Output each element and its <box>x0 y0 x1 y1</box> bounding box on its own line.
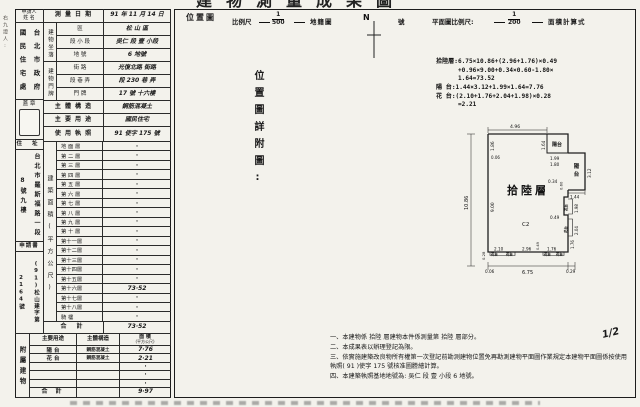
flower-bed-mark: 花台 <box>544 252 551 257</box>
balcony-label: 台 <box>574 170 580 178</box>
dim-label: 2.96 <box>522 247 532 252</box>
situs-section-value: 吳仁 段 壹 小段 <box>104 36 171 49</box>
address-label: 住 址 <box>15 140 44 150</box>
flower-bed-mark: 花台 <box>556 252 563 257</box>
annex-total-value: 9·97 <box>120 388 171 398</box>
floor-value: · <box>103 161 171 169</box>
lane-label: 段 巷 弄 <box>57 75 104 88</box>
document-title: 建物測量成果圖 <box>196 0 526 8</box>
annex-area: · <box>120 371 171 378</box>
plan-scale-label: 平面圖比例尺: <box>432 16 474 26</box>
annex-rows: 陽 台鋼筋混凝土7·76 花 台鋼筋混凝土2·21 · · · <box>30 346 171 388</box>
plan-scale-denominator: 200 <box>508 20 521 27</box>
floor-label: 第十二層 <box>57 246 103 254</box>
dim-label: 9.00 <box>490 202 496 212</box>
scale-dash <box>259 22 270 23</box>
table-row: 第十二層· <box>57 246 171 255</box>
note-line: 一、本建物係 拾陸 層建物本件係測量第 拾陸 層部分。 <box>330 334 630 343</box>
table-row: 第十四層· <box>57 265 171 274</box>
situs-lot-label: 地 號 <box>57 49 104 62</box>
annex-use <box>30 380 77 387</box>
dim-label: 0.06 <box>491 155 500 160</box>
dim-label: 1.86 <box>490 141 496 151</box>
floor-value: · <box>103 180 171 188</box>
formula-line: 陽 台:1.44×3.12+1.99×1.64=7.76 <box>436 84 557 93</box>
dim-label: 1.44 <box>570 195 580 200</box>
dim-label: 0.29 <box>566 269 576 274</box>
table-row: 花 台鋼筋混凝土2·21 <box>30 354 171 362</box>
applicant-header: 申請人 姓 名 <box>15 9 44 23</box>
flower-bed-mark: 花台 <box>564 204 569 211</box>
formula-line: +0.96×9.00+0.34×0.60-1.80× <box>436 67 557 76</box>
annex-area: · <box>120 363 171 370</box>
room-label: 拾陸層 <box>507 183 549 197</box>
dim-label: 1.99 <box>550 156 560 161</box>
table-row: 第十一層· <box>57 237 171 246</box>
lane-value: 段 230 巷 弄 <box>104 75 171 88</box>
annex-structure-header: 主體構造 <box>77 334 120 346</box>
note-line: 三、依實施建築改良物所有權第一次登記前勘測建物位置免再勘測建物平面圖作業規定本建… <box>330 354 630 372</box>
floor-label: 第 八 層 <box>57 208 103 216</box>
dim-label: 0.60 <box>559 181 564 190</box>
floor-area-group-label: 建築面積(平方公尺) <box>44 142 57 322</box>
annex-total-label: 合 計 <box>30 388 77 398</box>
application-label: 申請書 <box>15 242 44 252</box>
survey-date-value: 91 年 11 月 14 日 <box>104 9 171 23</box>
table-row: 地 面 層· <box>57 142 171 151</box>
scale-fraction: 1 500 <box>272 12 285 27</box>
plan-scale-fraction: 1 200 <box>508 12 521 27</box>
note-line: 四、本建築執照基地地號為: 吳仁 段 壹 小段 6 地號。 <box>330 373 630 382</box>
dim-label: 1.80 <box>550 162 560 167</box>
floor-value: · <box>103 294 171 302</box>
floor-area-table: 地 面 層· 第 二 層· 第 三 層· 第 四 層· 第 五 層· 第 六 層… <box>57 142 171 322</box>
dim-label: 0.06 <box>485 269 495 274</box>
table-row: 第十三層· <box>57 256 171 265</box>
flower-bed-mark: 花台 <box>491 252 498 257</box>
floors-total-value: 73·52 <box>104 322 171 334</box>
formula-line: 1.64=73.52 <box>436 75 557 84</box>
floor-label: 第十五層 <box>57 275 103 283</box>
annex-structure <box>77 371 120 378</box>
table-row: · <box>30 371 171 379</box>
number-label: 門 牌 <box>57 88 104 101</box>
floor-label: 第 七 層 <box>57 199 103 207</box>
dim-label: 1.98 <box>574 204 579 213</box>
license-value: 91 使字 175 號 <box>104 127 171 142</box>
balcony-label: 陽 <box>574 162 580 170</box>
flower-bed-mark: 花台 <box>563 226 568 233</box>
annex-structure <box>77 380 120 387</box>
floor-label: 第 九 層 <box>57 218 103 226</box>
street-label: 街 路 <box>57 62 104 75</box>
situs-section-label: 段 小 段 <box>57 36 104 49</box>
number-value: 17 號 十六樓 <box>104 88 171 101</box>
table-row: 第十七層· <box>57 294 171 303</box>
floor-value: · <box>103 189 171 197</box>
stamp-box <box>19 109 40 136</box>
formula-line: 拾陸層:6.75×10.86+(2.96+1.76)×0.49 <box>436 58 557 67</box>
floor-label: 第 六 層 <box>57 189 103 197</box>
cadastre-label: 地籍圖 <box>310 16 333 26</box>
table-row: 第 九 層· <box>57 218 171 227</box>
floor-value: · <box>103 227 171 235</box>
applicant-name-label: 姓 名 <box>23 16 35 22</box>
annex-group-label: 附屬建物 <box>15 334 30 398</box>
formula-line: =2.21 <box>436 101 557 110</box>
table-row: 第 六 層· <box>57 189 171 198</box>
formula-line: 花 台:(2.10+1.76+2.04+1.98)×0.28 <box>436 93 557 102</box>
table-row: 第 十 層· <box>57 227 171 236</box>
structure-label: 主 體 構 造 <box>44 101 104 114</box>
annex-use <box>30 371 77 378</box>
application-no: (91)松山建字第2164號 <box>15 252 44 334</box>
location-detail-caption: 位置圖詳附圖: <box>250 70 265 230</box>
annex-area: 2·21 <box>120 354 171 361</box>
floors-total-label: 合 計 <box>44 322 104 334</box>
north-arrow: N <box>362 11 384 61</box>
area-calc-block: 拾陸層:6.75×10.86+(2.96+1.76)×0.49 +0.96×9.… <box>436 58 557 110</box>
scale-denominator: 500 <box>272 20 285 27</box>
table-row: 第 二 層· <box>57 151 171 160</box>
annex-use-header: 主要用途 <box>30 334 77 346</box>
annex-use: 陽 台 <box>30 346 77 353</box>
dim-label: 0.49 <box>536 241 540 250</box>
dim-label: 6.75 <box>522 270 533 276</box>
floor-value: · <box>103 199 171 207</box>
street-value: 光復北路 街路 <box>104 62 171 75</box>
table-row: 第 四 層· <box>57 170 171 179</box>
margin-annotation: 右九證人: <box>2 15 9 85</box>
note-line: 二、本成果表以辦理登記為限。 <box>330 344 630 353</box>
scale-dash <box>294 22 305 23</box>
floor-value: · <box>103 218 171 226</box>
dim-label: 1.64 <box>541 140 546 150</box>
area-header-line2: (平方公尺) <box>135 340 154 344</box>
floor-value: · <box>103 275 171 283</box>
situs-lot-value: 6 地號 <box>104 49 171 62</box>
annex-use: 花 台 <box>30 354 77 361</box>
floor-label: 第 二 層 <box>57 151 103 159</box>
floor-label: 第 五 層 <box>57 180 103 188</box>
seal-cell: 蓋 章 <box>15 100 44 140</box>
scale-label: 比例尺 <box>232 16 252 26</box>
floor-value: · <box>103 303 171 311</box>
scale-dash <box>494 22 505 23</box>
floor-plan: 4.96 10.86 1.86 9.00 0.06 陽台 1.64 1.99 1… <box>444 120 632 298</box>
annex-structure: 鋼筋混凝土 <box>77 354 120 361</box>
dim-label: 0.28 <box>481 251 486 260</box>
dim-label: 2.04 <box>574 226 579 235</box>
scale-dash <box>532 22 543 23</box>
situs-district-label: 區 <box>57 23 104 36</box>
floor-value: 73·52 <box>103 284 171 292</box>
floor-label: 第 三 層 <box>57 161 103 169</box>
table-row: 第十五層· <box>57 275 171 284</box>
area-calc-label: 面積計算式 <box>548 16 586 26</box>
situs-group-label: 建物坐落 <box>44 23 57 62</box>
structure-value: 鋼筋混凝土 <box>104 101 171 114</box>
usage-value: 國民住宅 <box>104 114 171 127</box>
location-map-label: 位置圖 <box>186 12 216 23</box>
dim-label: 4.96 <box>510 124 520 130</box>
floor-value: · <box>103 256 171 264</box>
dim-label: 1.76 <box>570 240 575 249</box>
annex-area: 7·76 <box>120 346 171 353</box>
cadastre-no-label: 號 <box>398 16 405 26</box>
floor-label: 第十六層 <box>57 284 103 292</box>
table-row: 騎 樓· <box>57 312 171 321</box>
table-row: 第 五 層· <box>57 180 171 189</box>
dim-label: 0.49 <box>550 215 560 220</box>
license-label: 使 用 執 照 <box>44 127 104 142</box>
floor-value: · <box>103 151 171 159</box>
floor-value: · <box>103 170 171 178</box>
table-row: 第十八層· <box>57 303 171 312</box>
floor-label: 第十八層 <box>57 303 103 311</box>
floor-label: 第 四 層 <box>57 170 103 178</box>
table-row: · <box>30 380 171 388</box>
floor-label: 騎 樓 <box>57 312 103 320</box>
dim-label: 2.10 <box>494 247 504 252</box>
floor-value: · <box>103 312 171 320</box>
floor-label: 地 面 層 <box>57 142 103 150</box>
annex-structure: 鋼筋混凝土 <box>77 346 120 353</box>
dim-label: 1.76 <box>547 247 557 252</box>
doorplate-group-label: 建物門牌 <box>44 62 57 101</box>
floor-value: · <box>103 208 171 216</box>
floor-value: · <box>103 142 171 150</box>
notes-block: 一、本建物係 拾陸 層建物本件係測量第 拾陸 層部分。 二、本成果表以辦理登記為… <box>330 334 630 383</box>
dim-label: 10.86 <box>464 196 470 210</box>
table-row: 第 三 層· <box>57 161 171 170</box>
floor-label: 第十四層 <box>57 265 103 273</box>
annex-structure <box>77 363 120 370</box>
seal-label: 蓋 章 <box>23 101 36 107</box>
clipped-title: 建物測量成果圖 <box>196 0 526 8</box>
dim-label: 0.34 <box>548 179 558 184</box>
table-row: 第十六層73·52 <box>57 284 171 293</box>
scan-artifact <box>70 401 540 405</box>
table-row: 第 七 層· <box>57 199 171 208</box>
applicant-name-value: 台北市政府國民住宅處 <box>15 23 44 100</box>
annex-total-spacer <box>77 388 120 398</box>
annex-area: · <box>120 380 171 387</box>
table-row: 第 八 層· <box>57 208 171 217</box>
floor-label: 第十七層 <box>57 294 103 302</box>
floor-value: · <box>103 265 171 273</box>
survey-date-label: 測 量 日 期 <box>44 9 104 23</box>
flower-bed-mark: 花台 <box>506 252 513 257</box>
usage-label: 主 要 用 途 <box>44 114 104 127</box>
scanned-survey-form: 建物測量成果圖 右九證人: 申請人 姓 名 測 量 日 期 91 年 11 月 … <box>0 0 640 407</box>
floor-label: 第 十 層 <box>57 227 103 235</box>
annex-area-header: 面 積 (平方公尺) <box>120 334 171 346</box>
table-row: · <box>30 363 171 371</box>
dim-label: 3.12 <box>587 168 593 178</box>
north-label: N <box>363 13 370 22</box>
balcony-label: 陽台 <box>552 141 562 148</box>
floor-label: 第十一層 <box>57 237 103 245</box>
unit-label: C2 <box>522 222 529 228</box>
floor-value: · <box>103 246 171 254</box>
floor-value: · <box>103 237 171 245</box>
address-value: 台北市羅斯福路一段8號九樓 <box>15 150 44 242</box>
situs-district-value: 松 山 區 <box>104 23 171 36</box>
annex-use <box>30 363 77 370</box>
floor-label: 第十三層 <box>57 256 103 264</box>
